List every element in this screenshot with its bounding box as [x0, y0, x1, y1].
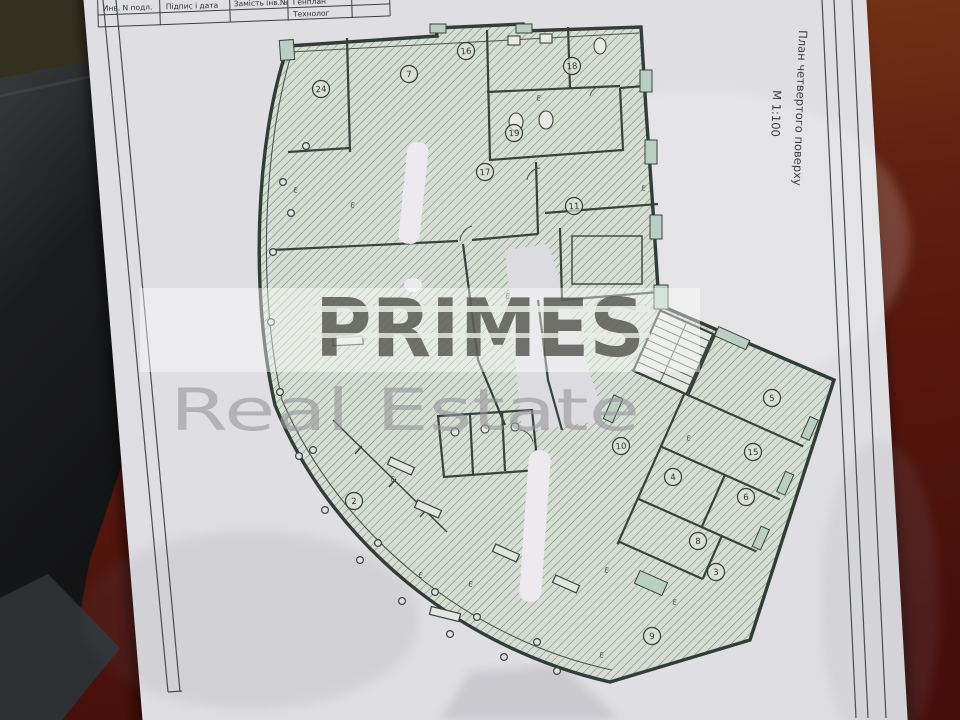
sink-icon	[540, 34, 552, 43]
room-number: 9	[643, 627, 661, 645]
column-dot	[554, 668, 561, 675]
svg-text:17: 17	[479, 168, 490, 179]
svg-text:5: 5	[769, 394, 775, 404]
title-block-stamp-row-1: Генплан	[293, 0, 327, 7]
wall-accent	[516, 24, 532, 33]
svg-text:16: 16	[460, 47, 471, 58]
column-dot	[447, 631, 454, 638]
toilet-icon	[594, 38, 606, 54]
room-number: 2	[345, 492, 363, 510]
title-block-cell-1: Инв. N подл.	[103, 3, 153, 13]
svg-text:18: 18	[566, 62, 577, 73]
svg-text:24: 24	[315, 85, 326, 96]
svg-text:11: 11	[568, 202, 579, 213]
title-block-cell-2: Підпис і дата	[166, 1, 219, 11]
svg-text:6: 6	[743, 493, 749, 503]
room-number: 3	[707, 563, 725, 581]
watermark-stencil-cut	[310, 333, 650, 338]
room-number: 15	[744, 443, 762, 461]
room-number: 11	[565, 197, 583, 215]
toilet-icon	[539, 111, 553, 129]
svg-text:4: 4	[670, 473, 676, 483]
column-dot	[474, 614, 481, 621]
column-dot	[322, 507, 329, 514]
column-dot	[399, 598, 406, 605]
column-dot	[303, 143, 310, 150]
room-number: 19	[505, 124, 523, 142]
svg-text:2: 2	[351, 497, 357, 507]
title-block-stamp-row-2: Технолог	[292, 9, 330, 19]
wall-accent	[650, 215, 662, 239]
room-number: 8	[689, 532, 707, 550]
column-dot	[270, 249, 277, 256]
watermark-stencil-cut	[310, 306, 650, 312]
floor-plan-photo-canvas: Инв. N подл. Підпис і дата Замість інв.№…	[0, 0, 960, 720]
svg-text:15: 15	[747, 448, 758, 459]
room-number: 4	[664, 468, 682, 486]
room-number: 6	[737, 488, 755, 506]
sink-icon	[508, 36, 520, 45]
column-dot	[357, 557, 364, 564]
svg-text:9: 9	[649, 632, 655, 642]
watermark-subtitle: Real Estate	[170, 376, 640, 444]
paper-wrinkle-shade	[80, 530, 420, 710]
wall-accent	[645, 140, 657, 164]
room-number: 7	[400, 65, 418, 83]
svg-text:19: 19	[508, 129, 519, 140]
column-dot	[432, 589, 439, 596]
column-dot	[296, 453, 303, 460]
column-dot	[288, 210, 295, 217]
svg-text:3: 3	[713, 568, 719, 578]
column-dot	[501, 654, 508, 661]
watermark: PRIMES Real Estate	[140, 282, 700, 444]
column-dot	[310, 447, 317, 454]
column-dot	[375, 540, 382, 547]
column-dot	[534, 639, 541, 646]
watermark-brand: PRIMES	[315, 282, 645, 375]
wall-accent	[430, 24, 446, 33]
room-number: 16	[457, 42, 475, 60]
photo-of-floor-plan: Инв. N подл. Підпис і дата Замість інв.№…	[0, 0, 960, 720]
wall-accent	[640, 70, 652, 92]
svg-text:7: 7	[406, 70, 412, 80]
room-number: 18	[563, 57, 581, 75]
room-number: 17	[476, 163, 494, 181]
svg-text:8: 8	[695, 537, 701, 547]
sheet-scale: М 1:100	[768, 90, 784, 137]
column-dot	[280, 179, 287, 186]
room-number: 5	[763, 389, 781, 407]
room-number: 24	[312, 80, 330, 98]
wall-accent	[279, 40, 294, 61]
